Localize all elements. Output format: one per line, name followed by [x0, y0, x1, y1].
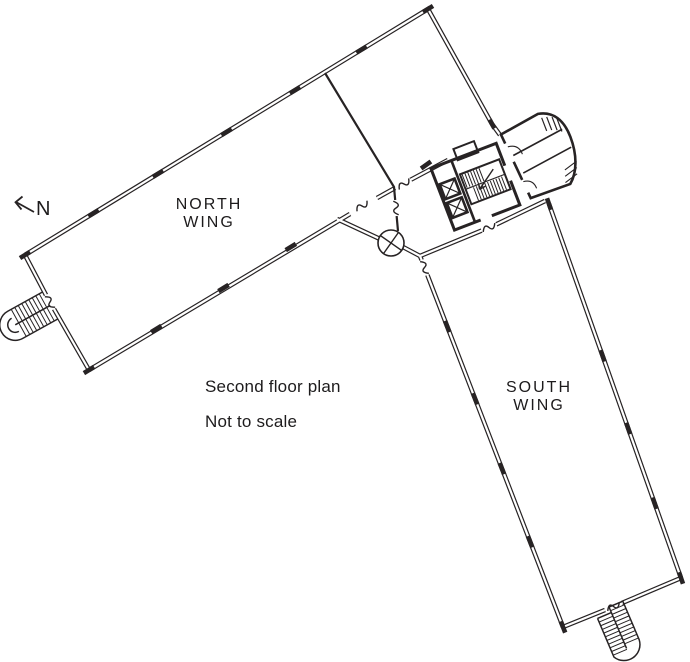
wall-column-ticks: [20, 6, 683, 633]
plan-caption-line1: Second floor plan: [205, 377, 341, 397]
entry-steps: [560, 161, 583, 182]
plan-caption-line2: Not to scale: [205, 412, 297, 432]
core-door-openings: [466, 166, 520, 220]
core-stair: [460, 159, 511, 204]
vestibule-louvers: [542, 113, 562, 137]
wall-lines-outer: [25, 9, 681, 627]
floor-plan-page: NORTH WING SOUTH WING Second floor plan …: [0, 0, 690, 662]
vestibule-partitions: [511, 129, 574, 175]
north-wing-label-line1: NORTH: [139, 196, 279, 214]
wall-lines-inner: [25, 9, 681, 627]
south-wing-label-line2: WING: [469, 397, 609, 415]
north-wing-label-line2: WING: [139, 214, 279, 232]
north-wing-label: NORTH WING: [139, 196, 279, 231]
south-wing-label-line1: SOUTH: [469, 379, 609, 397]
north-arrow-icon: [16, 197, 35, 213]
north-arrow-label: N: [36, 198, 50, 221]
south-wing-label: SOUTH WING: [469, 379, 609, 414]
floor-plan-drawing: [0, 0, 690, 662]
junction-column-symbol: [378, 230, 404, 256]
